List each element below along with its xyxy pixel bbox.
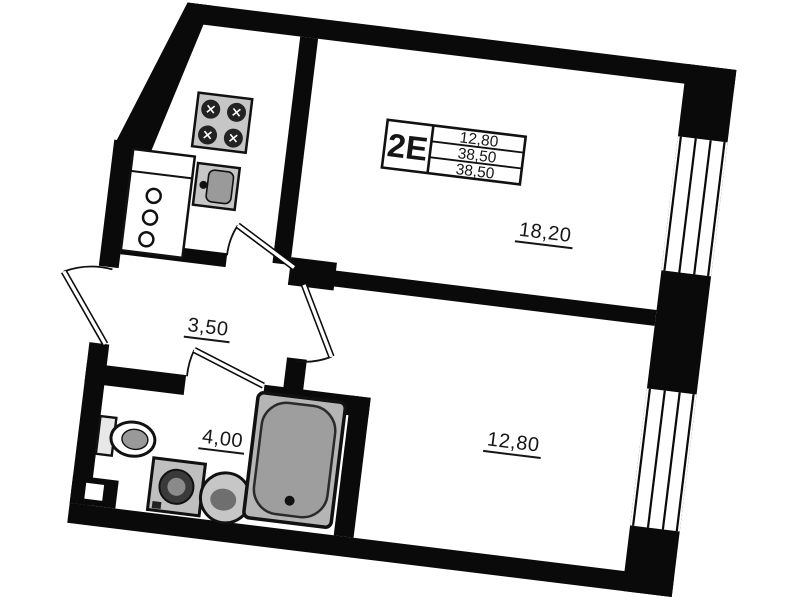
window-living-room (661, 136, 727, 276)
room-labels: 18,20 3,50 4,00 12,80 (171, 180, 576, 491)
window-bedroom (630, 388, 696, 531)
door-swing-arc (227, 224, 238, 256)
wall-top (185, 3, 736, 90)
stove (192, 93, 252, 153)
bathroom-door (187, 349, 267, 385)
kitchen-sink (193, 163, 240, 210)
floor-plan-page: 2E 12,80 38,50 38,50 18,20 3,50 4,00 12,… (0, 0, 799, 600)
bathtub (243, 392, 346, 528)
unit-type-label: 2E (385, 126, 430, 168)
bedroom-door (295, 285, 340, 366)
wall-living-bedroom-partition (328, 270, 656, 326)
title-block-value: 38,50 (455, 161, 496, 183)
door-swing-arc (187, 349, 194, 376)
wall-kitchen-living-partition (272, 37, 318, 265)
toilet (96, 416, 157, 461)
entrance-door (56, 263, 115, 344)
duct-void (84, 483, 104, 501)
floor-plan: 2E 12,80 38,50 38,50 18,20 3,50 4,00 12,… (0, 0, 799, 600)
title-block: 2E 12,80 38,50 38,50 (382, 120, 526, 186)
wardrobe (121, 149, 195, 258)
wall-bottom (67, 503, 674, 597)
washing-machine (147, 458, 205, 516)
